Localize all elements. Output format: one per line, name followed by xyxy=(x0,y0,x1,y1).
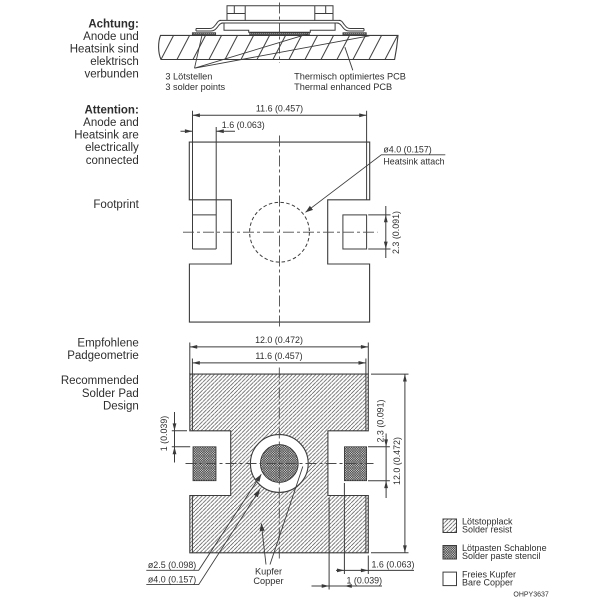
svg-text:Padgeometrie: Padgeometrie xyxy=(67,350,139,362)
svg-text:Empfohlene: Empfohlene xyxy=(77,337,138,349)
svg-text:Footprint: Footprint xyxy=(93,199,139,211)
svg-text:Anode and: Anode and xyxy=(83,117,139,129)
svg-text:1.6 (0.063): 1.6 (0.063) xyxy=(222,120,265,130)
svg-text:Thermal enhanced PCB: Thermal enhanced PCB xyxy=(294,82,392,92)
svg-text:1 (0.039): 1 (0.039) xyxy=(159,416,169,452)
svg-text:1 (0.039): 1 (0.039) xyxy=(347,576,383,586)
svg-text:2.3 (0.091): 2.3 (0.091) xyxy=(376,400,386,443)
svg-text:elektrisch: elektrisch xyxy=(90,56,139,68)
svg-text:Heatsink attach: Heatsink attach xyxy=(383,157,444,167)
svg-text:ø4.0 (0.157): ø4.0 (0.157) xyxy=(148,574,196,584)
svg-text:Kupfer: Kupfer xyxy=(255,567,282,577)
svg-text:1.6 (0.063): 1.6 (0.063) xyxy=(372,560,415,570)
svg-text:Copper: Copper xyxy=(253,576,283,586)
svg-text:connected: connected xyxy=(86,155,139,167)
svg-text:Design: Design xyxy=(103,400,139,412)
svg-text:Thermisch optimiertes PCB: Thermisch optimiertes PCB xyxy=(294,72,406,82)
svg-text:Achtung:: Achtung: xyxy=(88,18,138,30)
svg-text:Anode und: Anode und xyxy=(83,31,139,43)
svg-text:Solder paste stencil: Solder paste stencil xyxy=(462,551,541,561)
svg-text:12.0 (0.472): 12.0 (0.472) xyxy=(392,437,402,485)
svg-text:Solder Pad: Solder Pad xyxy=(82,388,139,400)
svg-text:3 Lötstellen: 3 Lötstellen xyxy=(165,72,212,82)
svg-text:Heatsink are: Heatsink are xyxy=(74,130,139,142)
svg-text:OHPY3637: OHPY3637 xyxy=(513,592,549,599)
svg-text:11.6 (0.457): 11.6 (0.457) xyxy=(256,104,303,114)
svg-text:12.0 (0.472): 12.0 (0.472) xyxy=(255,335,303,345)
svg-text:verbunden: verbunden xyxy=(84,69,138,81)
svg-text:Recommended: Recommended xyxy=(61,375,139,387)
svg-text:Solder resist: Solder resist xyxy=(462,524,513,534)
svg-text:3 solder points: 3 solder points xyxy=(165,82,225,92)
svg-text:ø2.5 (0.098): ø2.5 (0.098) xyxy=(148,560,196,570)
svg-text:electrically: electrically xyxy=(85,142,139,154)
svg-text:Heatsink sind: Heatsink sind xyxy=(70,44,139,56)
svg-text:Attention:: Attention: xyxy=(85,104,139,116)
svg-text:ø4.0 (0.157): ø4.0 (0.157) xyxy=(383,144,431,154)
svg-text:11.6 (0.457): 11.6 (0.457) xyxy=(255,351,302,361)
svg-text:2.3 (0.091): 2.3 (0.091) xyxy=(391,211,401,254)
svg-text:Bare Copper: Bare Copper xyxy=(462,578,513,588)
